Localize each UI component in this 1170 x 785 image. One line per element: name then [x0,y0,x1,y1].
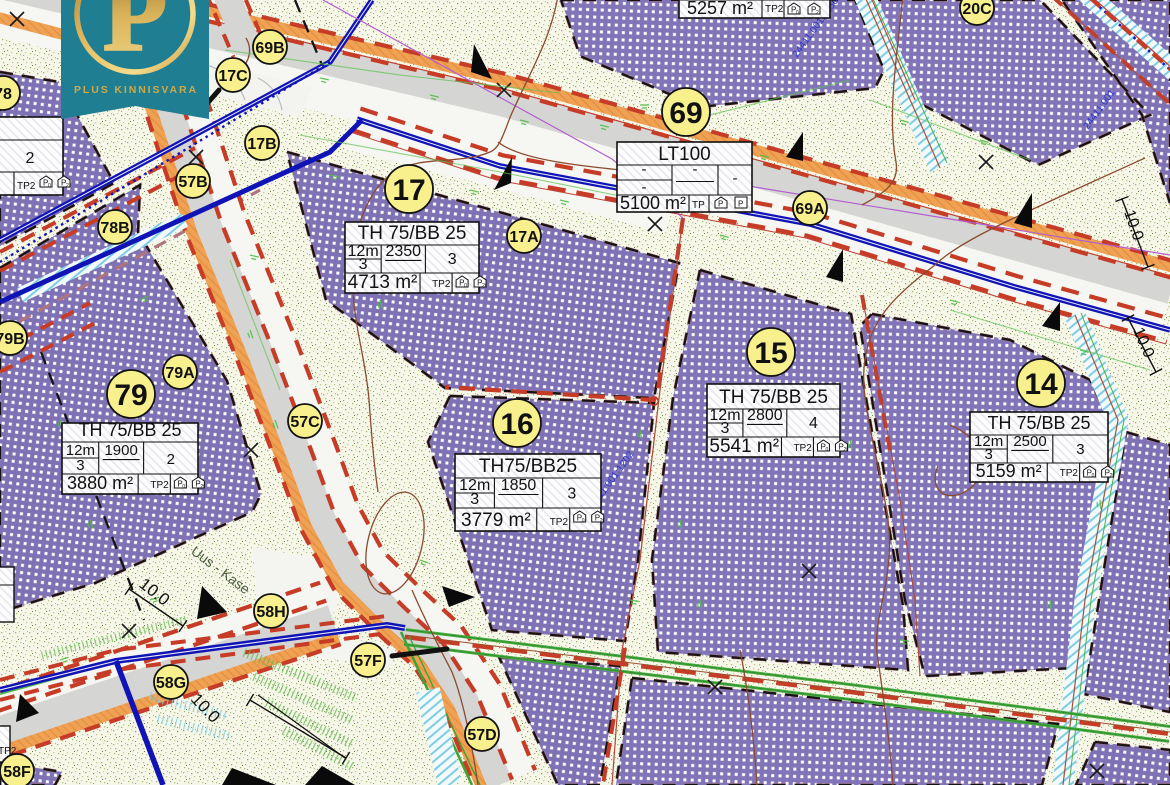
svg-text:2: 2 [816,10,819,16]
svg-text:TP: TP [692,200,705,211]
svg-text:0: 0 [796,10,799,16]
svg-text:TP2: TP2 [793,443,812,454]
svg-text:69B: 69B [255,40,284,57]
svg-text:78B: 78B [100,220,129,237]
svg-text:4713 m²: 4713 m² [348,272,418,293]
svg-text:TH 75/BB 25: TH 75/BB 25 [78,420,181,440]
svg-text:0: 0 [48,183,51,189]
svg-text:5541 m²: 5541 m² [709,436,779,457]
svg-text:3880 m²: 3880 m² [67,473,133,493]
svg-text:58H: 58H [256,604,285,621]
svg-text:5100 m²: 5100 m² [620,193,686,213]
svg-text:2t: 2t [482,283,487,289]
svg-text:3: 3 [1076,441,1084,458]
svg-text:3: 3 [567,485,576,502]
svg-text:0: 0 [182,484,185,490]
svg-text:TH 75/BB 25: TH 75/BB 25 [987,413,1090,433]
svg-text:0: 0 [1092,473,1095,479]
svg-text:4: 4 [809,415,818,432]
svg-text:2t: 2t [200,484,205,490]
svg-text:2500: 2500 [1013,433,1046,450]
svg-text:15: 15 [754,337,787,370]
svg-text:69: 69 [669,97,702,130]
svg-text:TH 75/BB 25: TH 75/BB 25 [719,387,828,408]
svg-text:17B: 17B [247,136,276,153]
svg-text:P: P [103,0,168,73]
svg-text:TP2: TP2 [150,480,169,491]
svg-text:1900: 1900 [104,442,137,459]
svg-text:TP2: TP2 [432,279,451,290]
svg-text:57F: 57F [354,653,382,670]
svg-text:14: 14 [1024,368,1058,401]
svg-text:-: - [693,161,698,178]
svg-text:3: 3 [359,256,368,273]
svg-text:79B: 79B [0,331,25,348]
svg-text:69A: 69A [795,201,825,218]
svg-text:57D: 57D [467,727,496,744]
svg-text:TP2: TP2 [1060,468,1079,479]
svg-text:PLUS KINNISVARA: PLUS KINNISVARA [74,84,198,96]
svg-text:TP2: TP2 [765,4,784,15]
svg-text:57B: 57B [178,174,207,191]
svg-text:17C: 17C [218,68,248,85]
svg-text:3: 3 [448,251,457,268]
svg-text:TP2: TP2 [550,517,569,528]
svg-text:79: 79 [114,379,147,412]
svg-text:3: 3 [76,457,84,474]
svg-text:5159 m²: 5159 m² [976,461,1042,481]
svg-text:3: 3 [721,420,730,437]
svg-text:-: - [642,161,647,178]
svg-text:P: P [718,200,723,209]
svg-text:5257 m²: 5257 m² [687,0,753,18]
svg-text:2350: 2350 [385,243,421,260]
svg-text:2t: 2t [1110,473,1115,479]
svg-text:0: 0 [464,283,467,289]
svg-text:0: 0 [582,518,585,524]
svg-text:3779 m²: 3779 m² [461,510,531,531]
svg-text:2t: 2t [600,518,605,524]
svg-text:2: 2 [167,451,175,468]
svg-text:16: 16 [500,408,533,441]
svg-text:17: 17 [392,174,425,207]
svg-text:2: 2 [26,150,35,167]
svg-text:57C: 57C [290,414,320,431]
svg-text:2800: 2800 [747,407,783,424]
svg-text:79A: 79A [165,365,195,382]
svg-text:TH75/BB25: TH75/BB25 [479,456,577,477]
svg-text:2t: 2t [843,447,848,453]
svg-text:78: 78 [0,86,12,103]
svg-text:0: 0 [825,447,828,453]
svg-text:TP2: TP2 [17,181,36,192]
svg-text:LT100: LT100 [658,144,710,165]
svg-text:2: 2 [66,183,69,189]
svg-text:20C: 20C [962,1,992,18]
svg-text:17A: 17A [509,229,539,246]
svg-text:TH 75/BB 25: TH 75/BB 25 [358,223,467,244]
svg-text:P: P [738,200,743,209]
svg-text:3: 3 [470,491,479,508]
svg-text:-: - [733,170,738,187]
svg-text:1850: 1850 [501,477,537,494]
svg-text:58F: 58F [3,764,31,781]
svg-text:58G: 58G [156,675,186,692]
